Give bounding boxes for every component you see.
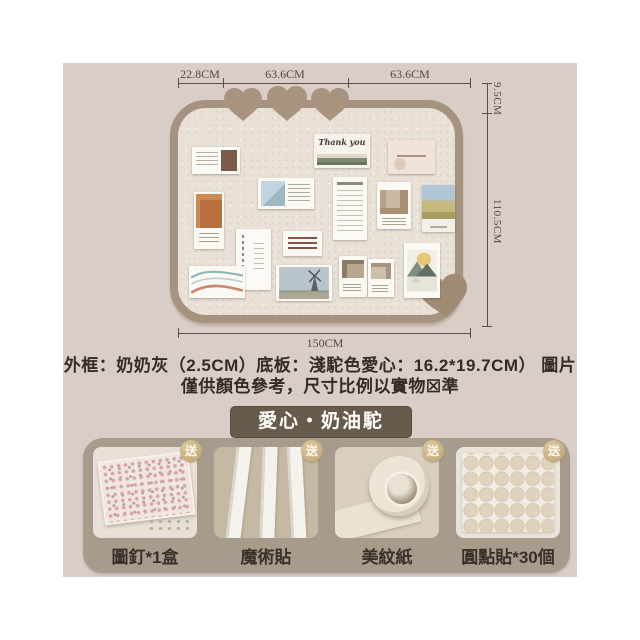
pinned-card-still-life (377, 182, 411, 229)
product-dot-stickers: 送 圓點貼*30個 (456, 447, 560, 568)
pinned-card-pink (388, 140, 435, 174)
dimension-label-right-main: 110.5CM (491, 186, 503, 256)
pinned-card-thank-you: Thank you (314, 134, 370, 168)
spec-description: 外框：奶奶灰（2.5CM）底板：淺駝色愛心：16.2*19.7CM） 圖片 僅供… (63, 355, 577, 397)
pinned-card-small-photo (339, 256, 367, 297)
dot-stickers-sheet (462, 453, 554, 531)
spec-line-1: 外框：奶奶灰（2.5CM）底板：淺駝色愛心：16.2*19.7CM） 圖片 (63, 355, 577, 376)
product-velcro: 送 魔術貼 (214, 447, 318, 568)
tape-roll-hole (384, 471, 420, 507)
gift-badge-icon: 送 (543, 440, 565, 462)
tick (470, 78, 471, 88)
spec-line-2: 僅供顏色參考，尺寸比例以實物☒準 (63, 376, 577, 397)
velcro-strip (224, 447, 251, 538)
tape-photo: 送 (335, 447, 439, 538)
product-label: 魔術貼 (241, 543, 292, 568)
dimension-label-right-top: 9.5CM (491, 76, 503, 122)
variant-badge: 愛心・奶油駝 (230, 406, 412, 438)
velcro-strip (286, 447, 306, 538)
dimension-line-top (178, 83, 471, 84)
wave-art-image (189, 266, 245, 298)
velcro-strip (259, 447, 278, 538)
gift-panel: 送 圖釘*1盒 送 魔術貼 (83, 438, 570, 573)
pins-photo-image (93, 447, 197, 538)
product-label: 圖釘*1盒 (111, 543, 178, 568)
windmill-photo (278, 267, 330, 299)
pinned-card-small-photo (368, 259, 394, 297)
tick (348, 78, 349, 88)
velcro-photo: 送 (214, 447, 318, 538)
product-label: 美紋紙 (362, 543, 413, 568)
velcro-photo-image (214, 447, 318, 538)
product-pins: 送 圖釘*1盒 (93, 447, 197, 568)
pins-scatter (147, 518, 189, 533)
tick (482, 326, 492, 327)
mountain-illustration (407, 246, 437, 295)
gift-badge-icon: 送 (422, 440, 444, 462)
product-label: 圓點貼*30個 (461, 543, 555, 568)
thank-you-text: Thank you (314, 137, 370, 147)
gift-badge-icon: 送 (301, 440, 323, 462)
tick (178, 328, 179, 338)
pinned-card-mountain (404, 243, 440, 298)
dimension-line-right (487, 83, 488, 327)
tick (470, 328, 471, 338)
dimension-label-top-mid: 63.6CM (253, 67, 317, 82)
heart-icon (267, 86, 307, 121)
pinned-card-meadow (422, 185, 455, 232)
pinned-card-windmill (276, 265, 332, 301)
pinned-card-leaf (258, 178, 314, 209)
pinned-card-red-text (283, 231, 322, 256)
dimension-label-top-left: 22.8CM (168, 67, 232, 82)
dimension-label-bottom: 150CM (293, 336, 357, 351)
dot-stickers-photo: 送 (456, 447, 560, 538)
pinned-card-receipt (333, 177, 367, 240)
gift-badge-icon: 送 (180, 440, 202, 462)
dimension-label-top-right: 63.6CM (378, 67, 442, 82)
dot-stickers-image (456, 447, 560, 538)
gift-panel-row: 送 圖釘*1盒 送 魔術貼 (93, 447, 560, 568)
dimension-line-bottom (178, 333, 471, 334)
pinned-card-wave-art (189, 266, 245, 298)
tape-photo-image (335, 447, 439, 538)
heart-icon (224, 88, 262, 121)
pinned-card-photo (192, 147, 240, 174)
pins-box (98, 451, 196, 526)
pins-photo: 送 (93, 447, 197, 538)
pinned-card-orange (194, 192, 224, 249)
tape-roll (369, 456, 429, 516)
product-infographic: 22.8CM 63.6CM 63.6CM 9.5CM 110.5CM 150CM… (0, 0, 640, 640)
heart-icon (311, 88, 349, 121)
product-tape: 送 美紋紙 (335, 447, 439, 568)
